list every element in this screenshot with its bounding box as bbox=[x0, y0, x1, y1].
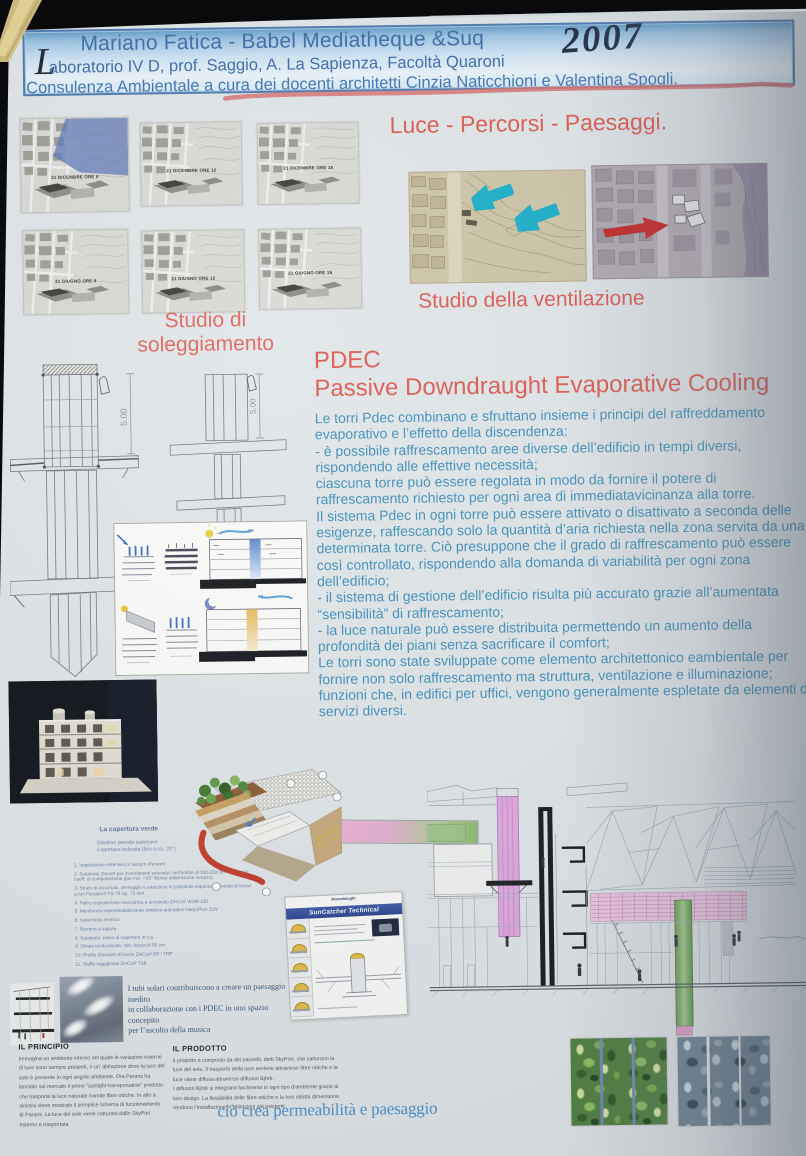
panel-divider bbox=[707, 1037, 711, 1126]
dimension-label: 5.00 bbox=[248, 398, 257, 414]
green-roof-subtitle: Giardino pensile estensivo Copertura inc… bbox=[97, 839, 176, 855]
device-thumb bbox=[287, 938, 310, 959]
terrain-line bbox=[759, 936, 806, 941]
sun-study-map-jun-12: 21 GIUGNO ORE 12 bbox=[141, 229, 245, 313]
airflow-diagram-panel bbox=[113, 520, 309, 676]
list-item: 6. Isolamento termico bbox=[75, 915, 253, 923]
list-item: 5. Membrana impermeabilizzante sintetica… bbox=[75, 906, 253, 914]
green-roof-strip bbox=[427, 824, 465, 842]
sun-study-map-jun-9: 21 GIUGNO ORE 9 bbox=[22, 229, 129, 315]
device-thumb bbox=[286, 919, 309, 940]
product-photo-thumb bbox=[372, 918, 400, 936]
panel-divider bbox=[632, 1038, 636, 1125]
principle-title: IL PRINCIPIO bbox=[18, 1042, 69, 1052]
wind-arrow-red-icon bbox=[603, 217, 669, 244]
building-section-drawing bbox=[427, 770, 806, 1049]
city-map-drawing bbox=[258, 123, 359, 204]
foliage-collage-panel bbox=[570, 1037, 667, 1125]
technical-drawing bbox=[314, 944, 403, 1004]
city-map-drawing bbox=[23, 230, 128, 314]
list-item: 9. Ghiaia tonda lavata, min. fascia di 5… bbox=[75, 942, 253, 950]
green-roof-detail-drawing bbox=[195, 767, 345, 903]
louvre-band-pink bbox=[590, 891, 746, 921]
city-map-drawing bbox=[259, 229, 361, 309]
model-building-image bbox=[8, 679, 158, 803]
poster-title: Mariano Fatica - Babel Mediatheque &Suq bbox=[80, 27, 484, 57]
permeability-caption: ciò crea permeabilità e paesaggio bbox=[217, 1099, 437, 1122]
canopy-mesh bbox=[586, 802, 796, 891]
pdec-title: Passive Downdraught Evaporative Cooling bbox=[314, 369, 769, 403]
skylight-glow bbox=[60, 1014, 92, 1042]
sun-study-caption: Studio di soleggiamento bbox=[100, 307, 311, 358]
panel-divider bbox=[599, 1038, 603, 1125]
poster-photo: Mariano Fatica - Babel Mediatheque &Suq … bbox=[0, 0, 806, 1156]
left-rooflines bbox=[427, 783, 627, 806]
list-item: 11. Staffa reggighiaia ZinCo® TS8 bbox=[75, 959, 253, 967]
list-item: 7. Barriera a vapore bbox=[75, 924, 253, 932]
city-map-drawing bbox=[142, 230, 244, 312]
louvre-band-grey bbox=[704, 867, 794, 884]
principle-body: Immagina un ambiente interno nel quale l… bbox=[19, 1053, 166, 1130]
poster-sheet: Mariano Fatica - Babel Mediatheque &Suq … bbox=[0, 0, 806, 1156]
wind-arrow-icon bbox=[510, 195, 561, 240]
sun-study-map-dec-12: 21 DICEMBRE ORE 12 bbox=[140, 121, 243, 206]
interior-section-sketch bbox=[10, 983, 55, 1046]
handwritten-year: 2007 bbox=[560, 14, 645, 62]
sun-study-map-jun-16: 21 GIUGNO ORE 16 bbox=[258, 228, 362, 310]
solar-tubes-note: I tubi solari contribuiscono a creare un… bbox=[128, 982, 297, 1037]
city-map-drawing bbox=[141, 122, 242, 205]
pdec-description: Le torri Pdec combinano e sfruttano insi… bbox=[315, 403, 806, 719]
device-thumb bbox=[288, 958, 311, 979]
list-item: 8. Substrato: piano di copertura in c.a. bbox=[75, 933, 253, 941]
glass-collage-panel bbox=[677, 1036, 770, 1126]
stairs bbox=[612, 920, 643, 983]
suncatcher-body bbox=[286, 914, 407, 1018]
red-figure bbox=[42, 1033, 44, 1038]
mid-columns bbox=[589, 921, 748, 985]
ventilation-map-urban bbox=[591, 163, 769, 279]
skylight-glow bbox=[62, 976, 99, 1001]
green-tower bbox=[675, 900, 694, 1035]
ceiling-skylight-photo bbox=[60, 976, 124, 1043]
green-roof-title: La copertura verde bbox=[99, 825, 158, 833]
dimension-a: 5.00 bbox=[118, 374, 135, 454]
product-title: IL PRODOTTO bbox=[172, 1044, 226, 1054]
sun-study-map-dec-15: 21 DICEMBRE ORE 15 bbox=[257, 122, 360, 205]
ventilation-map-contours bbox=[408, 169, 587, 283]
sun-study-map-dec-9: 21 DICEMBRE ORE 9 bbox=[20, 117, 130, 214]
list-item: 10. Profilo drenante di bordo ZinCo® DP … bbox=[75, 950, 253, 958]
wind-arrow-icon bbox=[467, 175, 514, 218]
ventilation-caption: Studio della ventilazione bbox=[418, 287, 645, 314]
panel-divider bbox=[738, 1036, 742, 1125]
dimension-label: 5.00 bbox=[119, 408, 129, 426]
suncatcher-datasheet: Monodraught SunCatcher Technical bbox=[284, 891, 408, 1021]
section-title-light: Luce - Percorsi - Paesaggi. bbox=[389, 108, 667, 139]
dimension-b: 5.00 bbox=[248, 374, 264, 438]
core-walls bbox=[538, 806, 587, 986]
pdec-acronym: PDEC bbox=[314, 346, 381, 375]
model-photo: Office Building, Catania, Italy, by Mari… bbox=[8, 679, 158, 803]
